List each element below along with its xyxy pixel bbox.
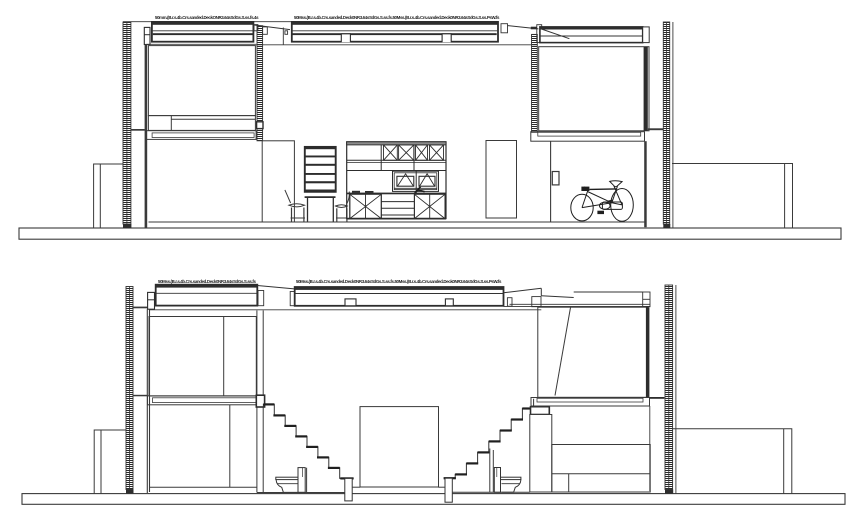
svg-text:50mm.(B.r.s.4b.Crs.sanded.Deck: 50mm.(B.r.s.4b.Crs.sanded.DeckONR3.64sSd… bbox=[155, 15, 259, 20]
svg-text:50Mss.(B.r.s.4b.Crs.sanded.Dec: 50Mss.(B.r.s.4b.Crs.sanded.Deck0NR3.64sS… bbox=[158, 279, 256, 284]
svg-text:50Mss.(B.r.s.4b.Crs.sanded.Dec: 50Mss.(B.r.s.4b.Crs.sanded.Deck0NR3.64sS… bbox=[294, 15, 500, 20]
svg-text:50Mss.(B.r.s.4b.Crs.sanded.Dec: 50Mss.(B.r.s.4b.Crs.sanded.Deck0NR3.64sS… bbox=[296, 279, 502, 284]
